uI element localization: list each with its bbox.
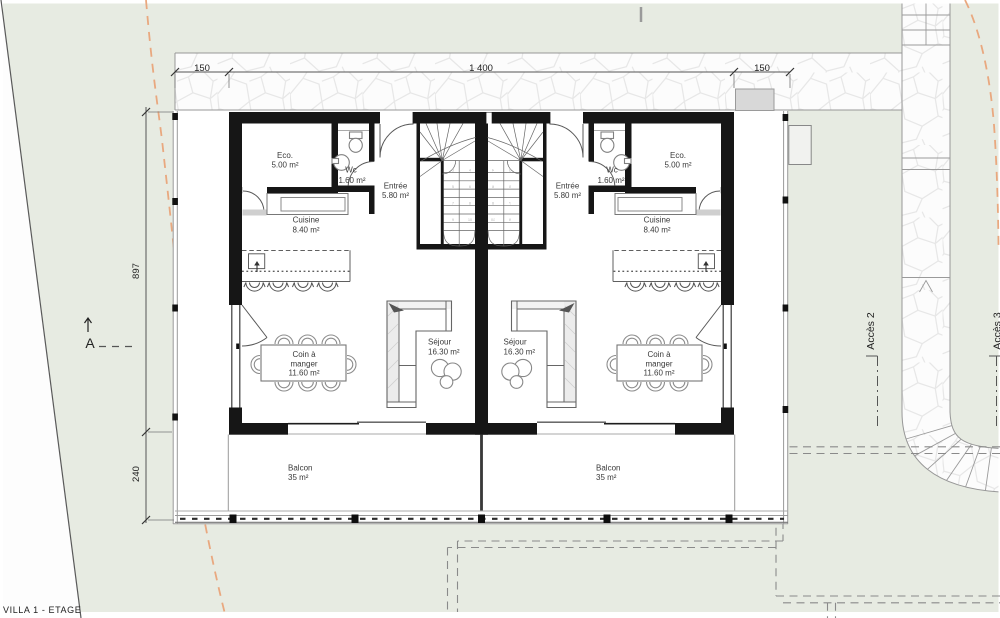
svg-text:897: 897	[131, 263, 142, 279]
svg-text:11.60 m²: 11.60 m²	[644, 369, 675, 378]
svg-text:5.00 m²: 5.00 m²	[664, 161, 691, 170]
svg-text:VILLA 1 - ETAGE: VILLA 1 - ETAGE	[3, 605, 81, 615]
svg-text:5.80 m²: 5.80 m²	[382, 191, 409, 200]
svg-text:9: 9	[452, 218, 454, 222]
svg-text:Séjour: Séjour	[504, 338, 527, 347]
svg-text:10: 10	[468, 218, 472, 222]
svg-text:Coin à: Coin à	[292, 350, 316, 359]
svg-text:16.30 m²: 16.30 m²	[504, 348, 536, 357]
svg-text:manger: manger	[645, 360, 672, 369]
svg-text:1.60 m²: 1.60 m²	[338, 176, 365, 185]
svg-text:35 m²: 35 m²	[596, 473, 617, 482]
svg-text:Accès 3: Accès 3	[992, 312, 1000, 350]
svg-text:Accès 2: Accès 2	[865, 312, 877, 350]
svg-text:11.60 m²: 11.60 m²	[289, 369, 320, 378]
svg-text:35 m²: 35 m²	[288, 473, 309, 482]
svg-text:Balcon: Balcon	[288, 464, 312, 473]
svg-text:8.40 m²: 8.40 m²	[292, 226, 319, 235]
svg-text:Cuisine: Cuisine	[644, 216, 671, 225]
svg-text:Séjour: Séjour	[428, 338, 451, 347]
svg-text:16.30 m²: 16.30 m²	[428, 348, 460, 357]
svg-text:5.00 m²: 5.00 m²	[271, 161, 298, 170]
svg-text:A: A	[85, 335, 95, 351]
svg-text:Coin à: Coin à	[647, 350, 671, 359]
svg-text:240: 240	[131, 466, 142, 482]
svg-text:Entrée: Entrée	[384, 182, 408, 191]
svg-text:5: 5	[452, 185, 454, 189]
svg-text:3: 3	[452, 169, 454, 173]
svg-text:Entrée: Entrée	[556, 182, 580, 191]
svg-text:8.40 m²: 8.40 m²	[643, 226, 670, 235]
svg-text:8: 8	[469, 202, 471, 206]
svg-text:7: 7	[452, 202, 454, 206]
svg-text:manger: manger	[290, 360, 317, 369]
svg-text:Eco.: Eco.	[670, 151, 686, 160]
svg-text:6: 6	[469, 185, 471, 189]
svg-text:4: 4	[469, 169, 471, 173]
svg-text:Wc: Wc	[345, 166, 357, 175]
svg-text:Wc: Wc	[606, 166, 618, 175]
svg-text:Eco.: Eco.	[277, 151, 293, 160]
svg-text:Balcon: Balcon	[596, 464, 620, 473]
svg-text:5.80 m²: 5.80 m²	[554, 191, 581, 200]
svg-text:Cuisine: Cuisine	[293, 216, 320, 225]
svg-text:1.60 m²: 1.60 m²	[597, 176, 624, 185]
